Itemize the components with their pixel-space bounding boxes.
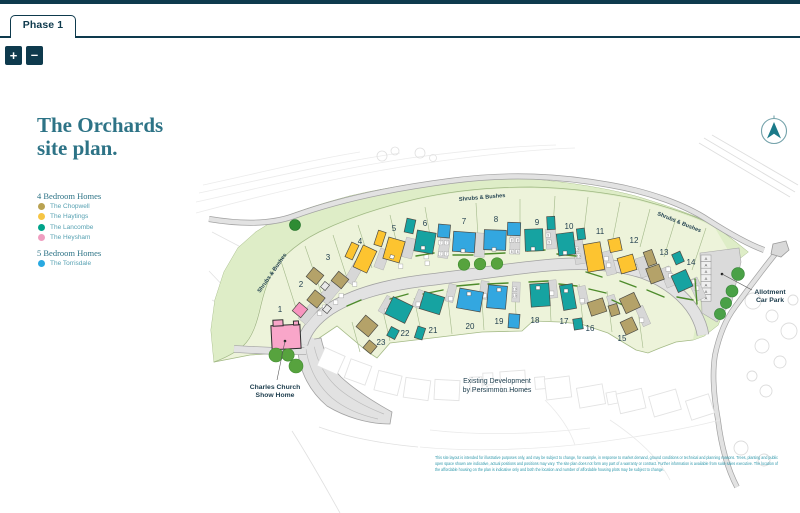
svg-text:2: 2 bbox=[299, 280, 304, 289]
svg-text:5: 5 bbox=[392, 224, 397, 233]
svg-text:19: 19 bbox=[513, 288, 517, 292]
svg-text:Allotment: Allotment bbox=[754, 289, 786, 296]
svg-text:15: 15 bbox=[618, 334, 627, 343]
svg-text:11: 11 bbox=[596, 227, 605, 236]
svg-text:9: 9 bbox=[548, 241, 550, 245]
svg-text:Charles Church: Charles Church bbox=[250, 384, 301, 391]
svg-text:A: A bbox=[705, 269, 708, 274]
svg-text:8: 8 bbox=[517, 239, 519, 243]
svg-text:17: 17 bbox=[560, 317, 569, 326]
svg-text:4: 4 bbox=[358, 237, 363, 246]
svg-text:12: 12 bbox=[630, 236, 639, 245]
svg-text:1: 1 bbox=[278, 305, 283, 314]
svg-text:10: 10 bbox=[577, 255, 581, 259]
svg-text:7: 7 bbox=[440, 252, 442, 256]
svg-text:by Persimmon Homes: by Persimmon Homes bbox=[463, 387, 532, 394]
svg-text:8: 8 bbox=[511, 250, 513, 254]
svg-text:8: 8 bbox=[511, 239, 513, 243]
svg-text:3: 3 bbox=[326, 253, 331, 262]
svg-text:A: A bbox=[705, 276, 708, 281]
svg-text:20: 20 bbox=[466, 322, 475, 331]
svg-text:6: 6 bbox=[423, 219, 428, 228]
svg-text:16: 16 bbox=[586, 324, 595, 333]
svg-text:7: 7 bbox=[446, 241, 448, 245]
svg-text:10: 10 bbox=[565, 222, 574, 231]
svg-text:14: 14 bbox=[687, 258, 696, 267]
svg-text:19: 19 bbox=[513, 294, 517, 298]
svg-text:9: 9 bbox=[535, 218, 540, 227]
svg-text:A: A bbox=[705, 256, 708, 261]
svg-text:A: A bbox=[705, 282, 708, 287]
svg-text:Car Park: Car Park bbox=[756, 297, 784, 304]
svg-text:7: 7 bbox=[446, 252, 448, 256]
svg-text:Show Home: Show Home bbox=[256, 392, 295, 399]
svg-text:13: 13 bbox=[660, 248, 669, 257]
svg-text:open space shown are indicativ: open space shown are indicative, actual … bbox=[435, 461, 779, 466]
svg-text:A: A bbox=[705, 289, 708, 294]
svg-text:9: 9 bbox=[547, 234, 549, 238]
svg-text:18: 18 bbox=[531, 316, 540, 325]
svg-text:21: 21 bbox=[429, 326, 438, 335]
svg-text:the affordable housing on the: the affordable housing on the plan is in… bbox=[435, 467, 664, 472]
svg-text:This site layout is intended f: This site layout is intended for illustr… bbox=[435, 455, 778, 460]
svg-text:23: 23 bbox=[377, 338, 386, 347]
svg-text:A: A bbox=[705, 263, 708, 268]
svg-text:22: 22 bbox=[401, 329, 410, 338]
svg-text:19: 19 bbox=[495, 317, 504, 326]
svg-text:8: 8 bbox=[517, 250, 519, 254]
svg-text:7: 7 bbox=[440, 241, 442, 245]
svg-text:Existing Development: Existing Development bbox=[463, 378, 531, 385]
svg-text:8: 8 bbox=[494, 215, 499, 224]
svg-text:7: 7 bbox=[462, 217, 467, 226]
